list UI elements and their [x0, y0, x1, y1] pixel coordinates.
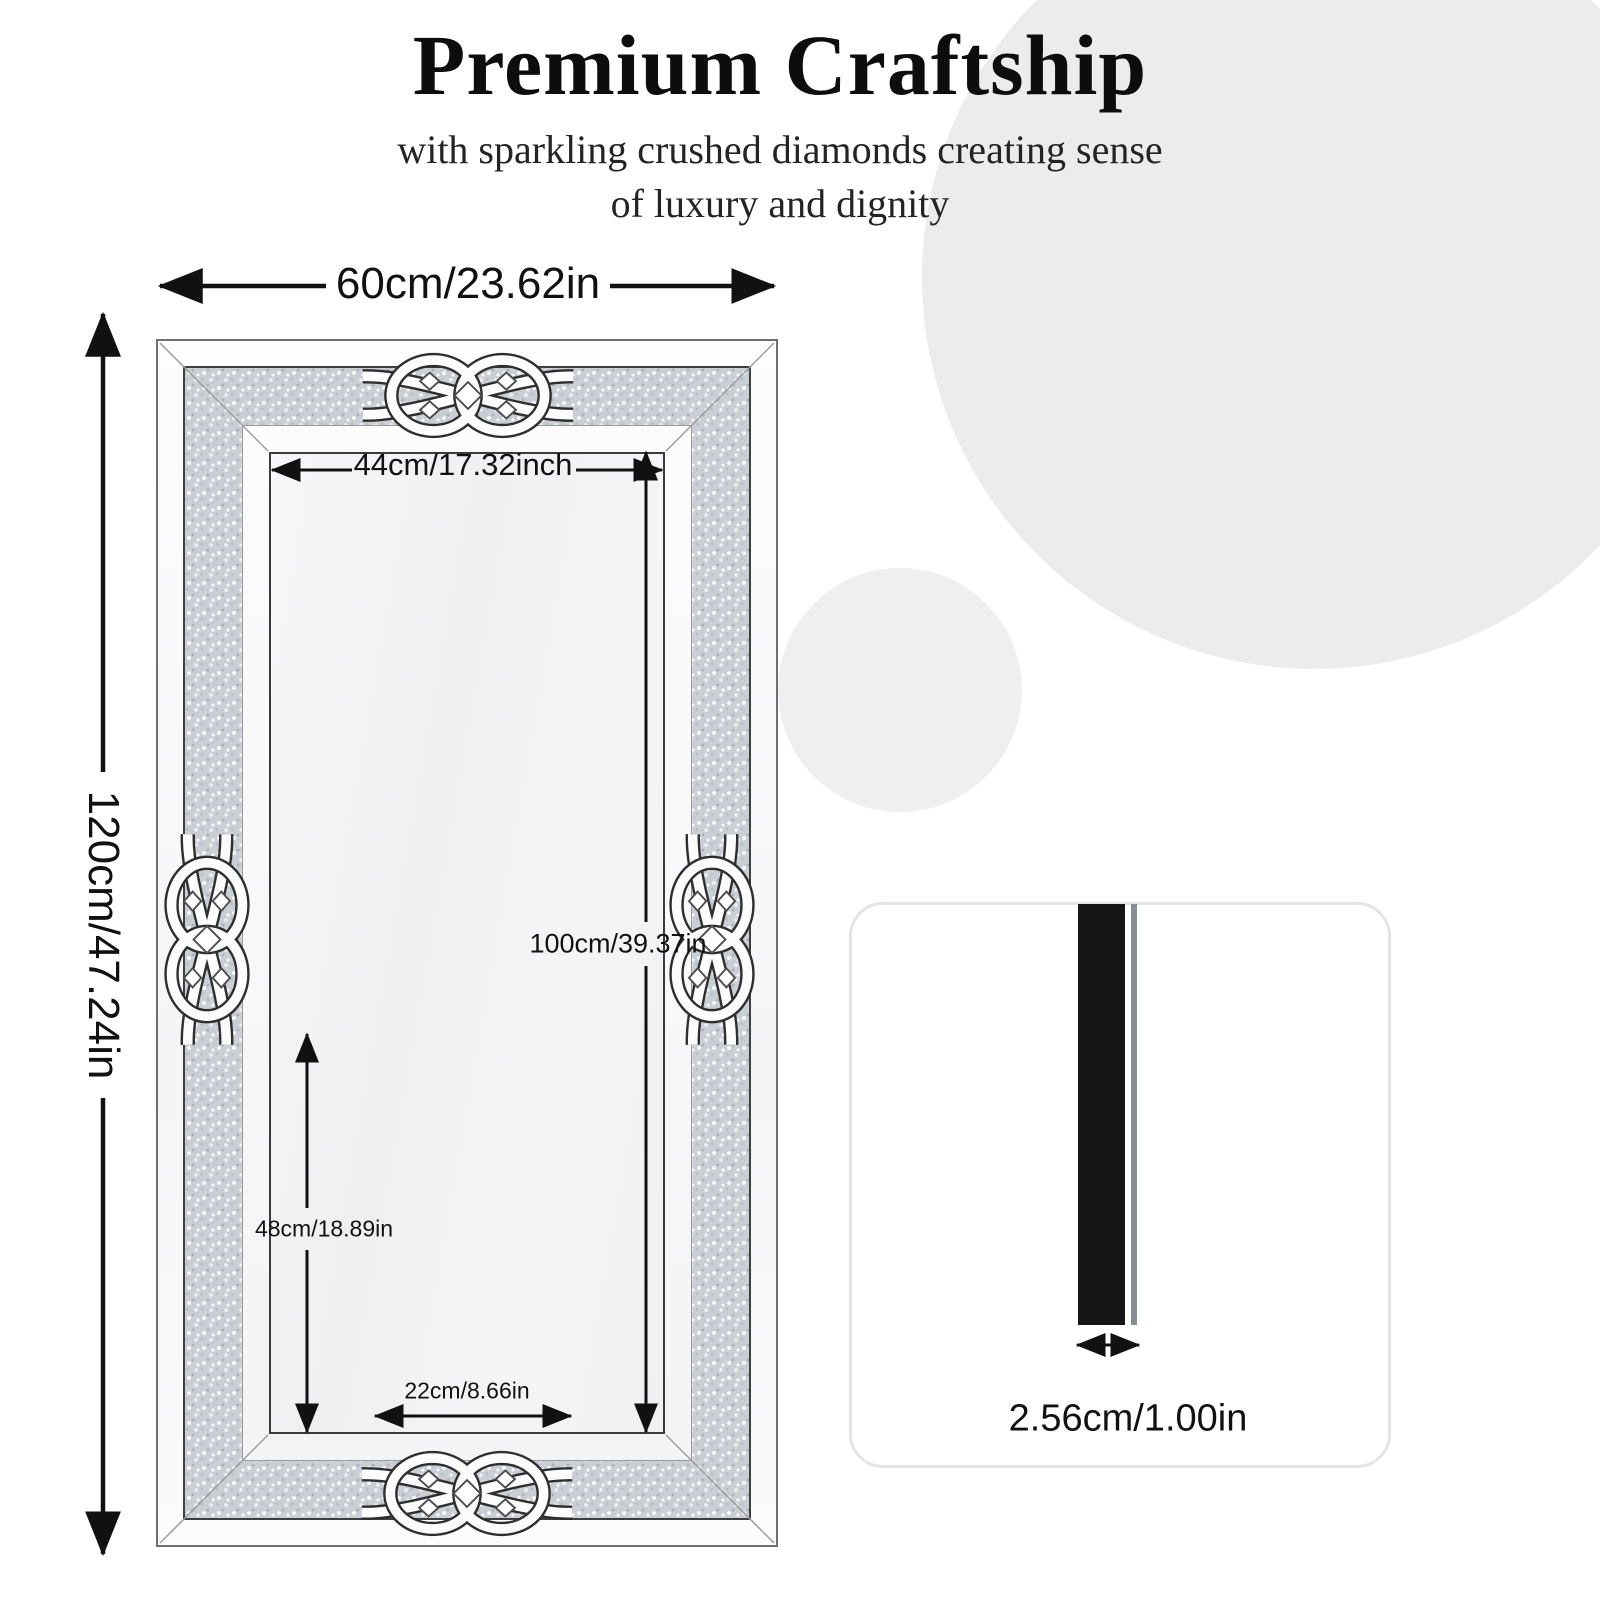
inner-height-label: 100cm/39.37in	[529, 929, 706, 960]
side-profile-mirror-strip	[1131, 904, 1137, 1325]
partial-height-label: 48cm/18.89in	[255, 1216, 393, 1243]
celtic-knot-bottom	[357, 1436, 577, 1551]
background-circle-small	[778, 568, 1022, 812]
subtitle-line-1: with sparkling crushed diamonds creating…	[0, 123, 1560, 177]
header: Premium Craftship with sparkling crushed…	[0, 18, 1560, 231]
infographic-canvas: Premium Craftship with sparkling crushed…	[0, 0, 1600, 1600]
bottom-inner-width-label: 22cm/8.66in	[404, 1378, 529, 1405]
subtitle-line-2: of luxury and dignity	[0, 177, 1560, 231]
thickness-card	[849, 902, 1391, 1468]
outer-width-label: 60cm/23.62in	[336, 259, 600, 309]
page-title: Premium Craftship	[0, 18, 1560, 113]
celtic-knot-top	[358, 338, 578, 453]
outer-height-label: 120cm/47.24in	[78, 791, 128, 1080]
side-profile-bar	[1078, 904, 1125, 1325]
celtic-knot-left	[150, 830, 265, 1050]
thickness-label: 2.56cm/1.00in	[1009, 1398, 1248, 1441]
subtitle: with sparkling crushed diamonds creating…	[0, 123, 1560, 231]
inner-width-label: 44cm/17.32inch	[354, 447, 573, 483]
